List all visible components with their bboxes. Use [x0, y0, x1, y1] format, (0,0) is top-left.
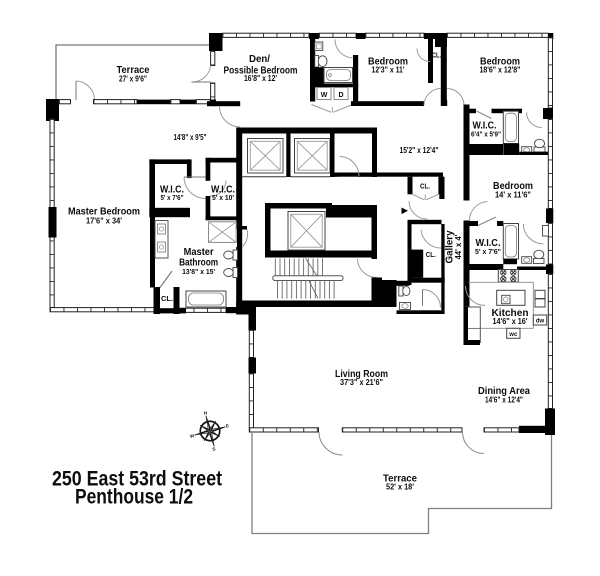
svg-text:52' x 18': 52' x 18' — [386, 483, 414, 492]
svg-text:5' x 7'6": 5' x 7'6" — [475, 247, 501, 256]
svg-text:6'4" x 5'9": 6'4" x 5'9" — [471, 130, 501, 139]
svg-text:14'6" x 12'4": 14'6" x 12'4" — [485, 396, 523, 405]
svg-text:37'3" x 21'6": 37'3" x 21'6" — [340, 378, 383, 387]
svg-text:16'8" x 12': 16'8" x 12' — [244, 74, 277, 83]
svg-text:CL.: CL. — [426, 252, 436, 259]
svg-text:CL.: CL. — [420, 184, 430, 191]
svg-text:W: W — [321, 92, 328, 99]
svg-text:27' x 9'6": 27' x 9'6" — [119, 75, 147, 84]
svg-text:14'6" x 16': 14'6" x 16' — [493, 317, 528, 326]
svg-text:13'8" x 15': 13'8" x 15' — [182, 267, 215, 276]
svg-text:CL.: CL. — [432, 53, 441, 60]
svg-text:wc: wc — [508, 332, 518, 338]
svg-text:44' x 4': 44' x 4' — [454, 234, 463, 259]
svg-text:14' x 11'6": 14' x 11'6" — [495, 191, 531, 200]
svg-text:17'6" x 34': 17'6" x 34' — [86, 217, 122, 226]
svg-text:18'6" x 12'8": 18'6" x 12'8" — [480, 66, 521, 75]
svg-text:D: D — [338, 92, 343, 99]
svg-text:5' x 7'6": 5' x 7'6" — [161, 193, 184, 202]
svg-text:15'2" x 12'4": 15'2" x 12'4" — [400, 146, 439, 155]
svg-text:CL.: CL. — [161, 296, 173, 303]
svg-text:14'8" x 9'5": 14'8" x 9'5" — [174, 133, 207, 142]
svg-text:Penthouse 1/2: Penthouse 1/2 — [75, 485, 193, 509]
svg-text:5' x 10': 5' x 10' — [212, 193, 234, 202]
svg-text:12'3" x 11': 12'3" x 11' — [372, 66, 405, 75]
svg-text:Den/: Den/ — [249, 53, 270, 65]
svg-text:dw: dw — [536, 319, 545, 325]
